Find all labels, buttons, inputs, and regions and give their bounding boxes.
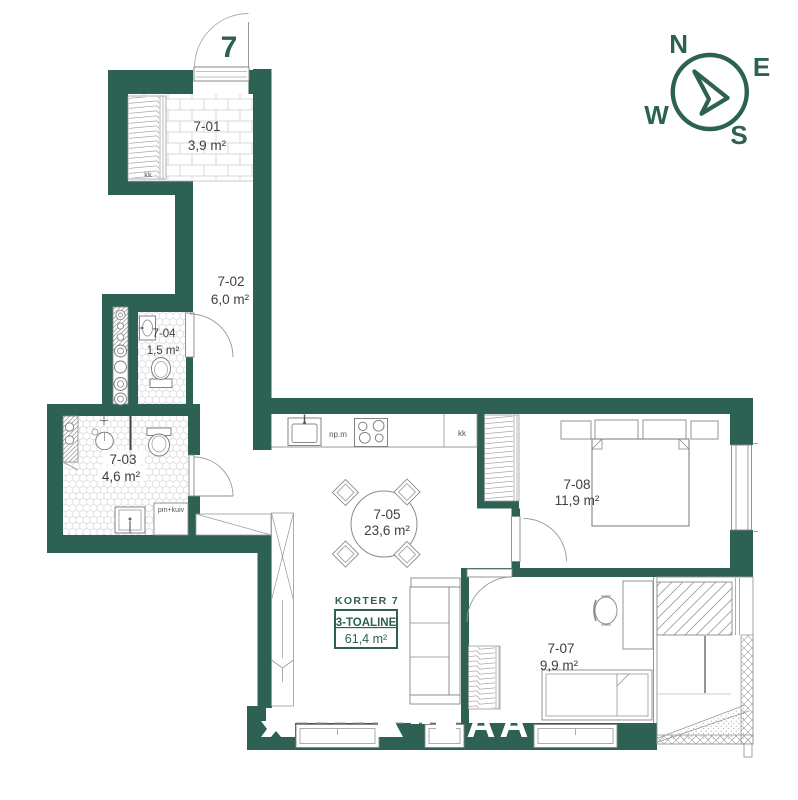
svg-text:A: A	[500, 702, 529, 746]
svg-text:23,6 m²: 23,6 m²	[364, 523, 410, 538]
svg-text:np.m: np.m	[329, 430, 347, 439]
svg-text:W: W	[644, 100, 669, 130]
svg-text:kk: kk	[458, 429, 467, 438]
svg-text:4,6 m²: 4,6 m²	[102, 469, 141, 484]
svg-text:KORTER 7: KORTER 7	[335, 595, 399, 607]
svg-text:61,4 m²: 61,4 m²	[345, 632, 387, 646]
svg-text:pm+kuiv: pm+kuiv	[158, 507, 185, 514]
svg-text:7-04: 7-04	[152, 328, 176, 340]
svg-text:7-01: 7-01	[193, 119, 220, 134]
svg-text:11,9 m²: 11,9 m²	[555, 493, 600, 508]
svg-text:7-08: 7-08	[563, 477, 590, 492]
svg-text:1,5 m²: 1,5 m²	[147, 345, 180, 357]
svg-text:6,0 m²: 6,0 m²	[211, 292, 250, 307]
svg-text:N: N	[669, 29, 688, 59]
svg-text:3,9 m²: 3,9 m²	[188, 138, 227, 153]
svg-text:A: A	[467, 702, 496, 746]
svg-text:E: E	[753, 52, 770, 82]
svg-text:S: S	[730, 120, 747, 150]
svg-text:7-05: 7-05	[373, 507, 400, 522]
svg-text:kk: kk	[144, 170, 152, 179]
svg-text:7-07: 7-07	[547, 641, 574, 656]
svg-text:7-02: 7-02	[217, 274, 244, 289]
svg-text:9,9 m²: 9,9 m²	[540, 658, 579, 673]
svg-text:3-TOALINE: 3-TOALINE	[336, 617, 397, 629]
svg-text:7-03: 7-03	[109, 452, 136, 467]
svg-text:7: 7	[221, 31, 238, 64]
